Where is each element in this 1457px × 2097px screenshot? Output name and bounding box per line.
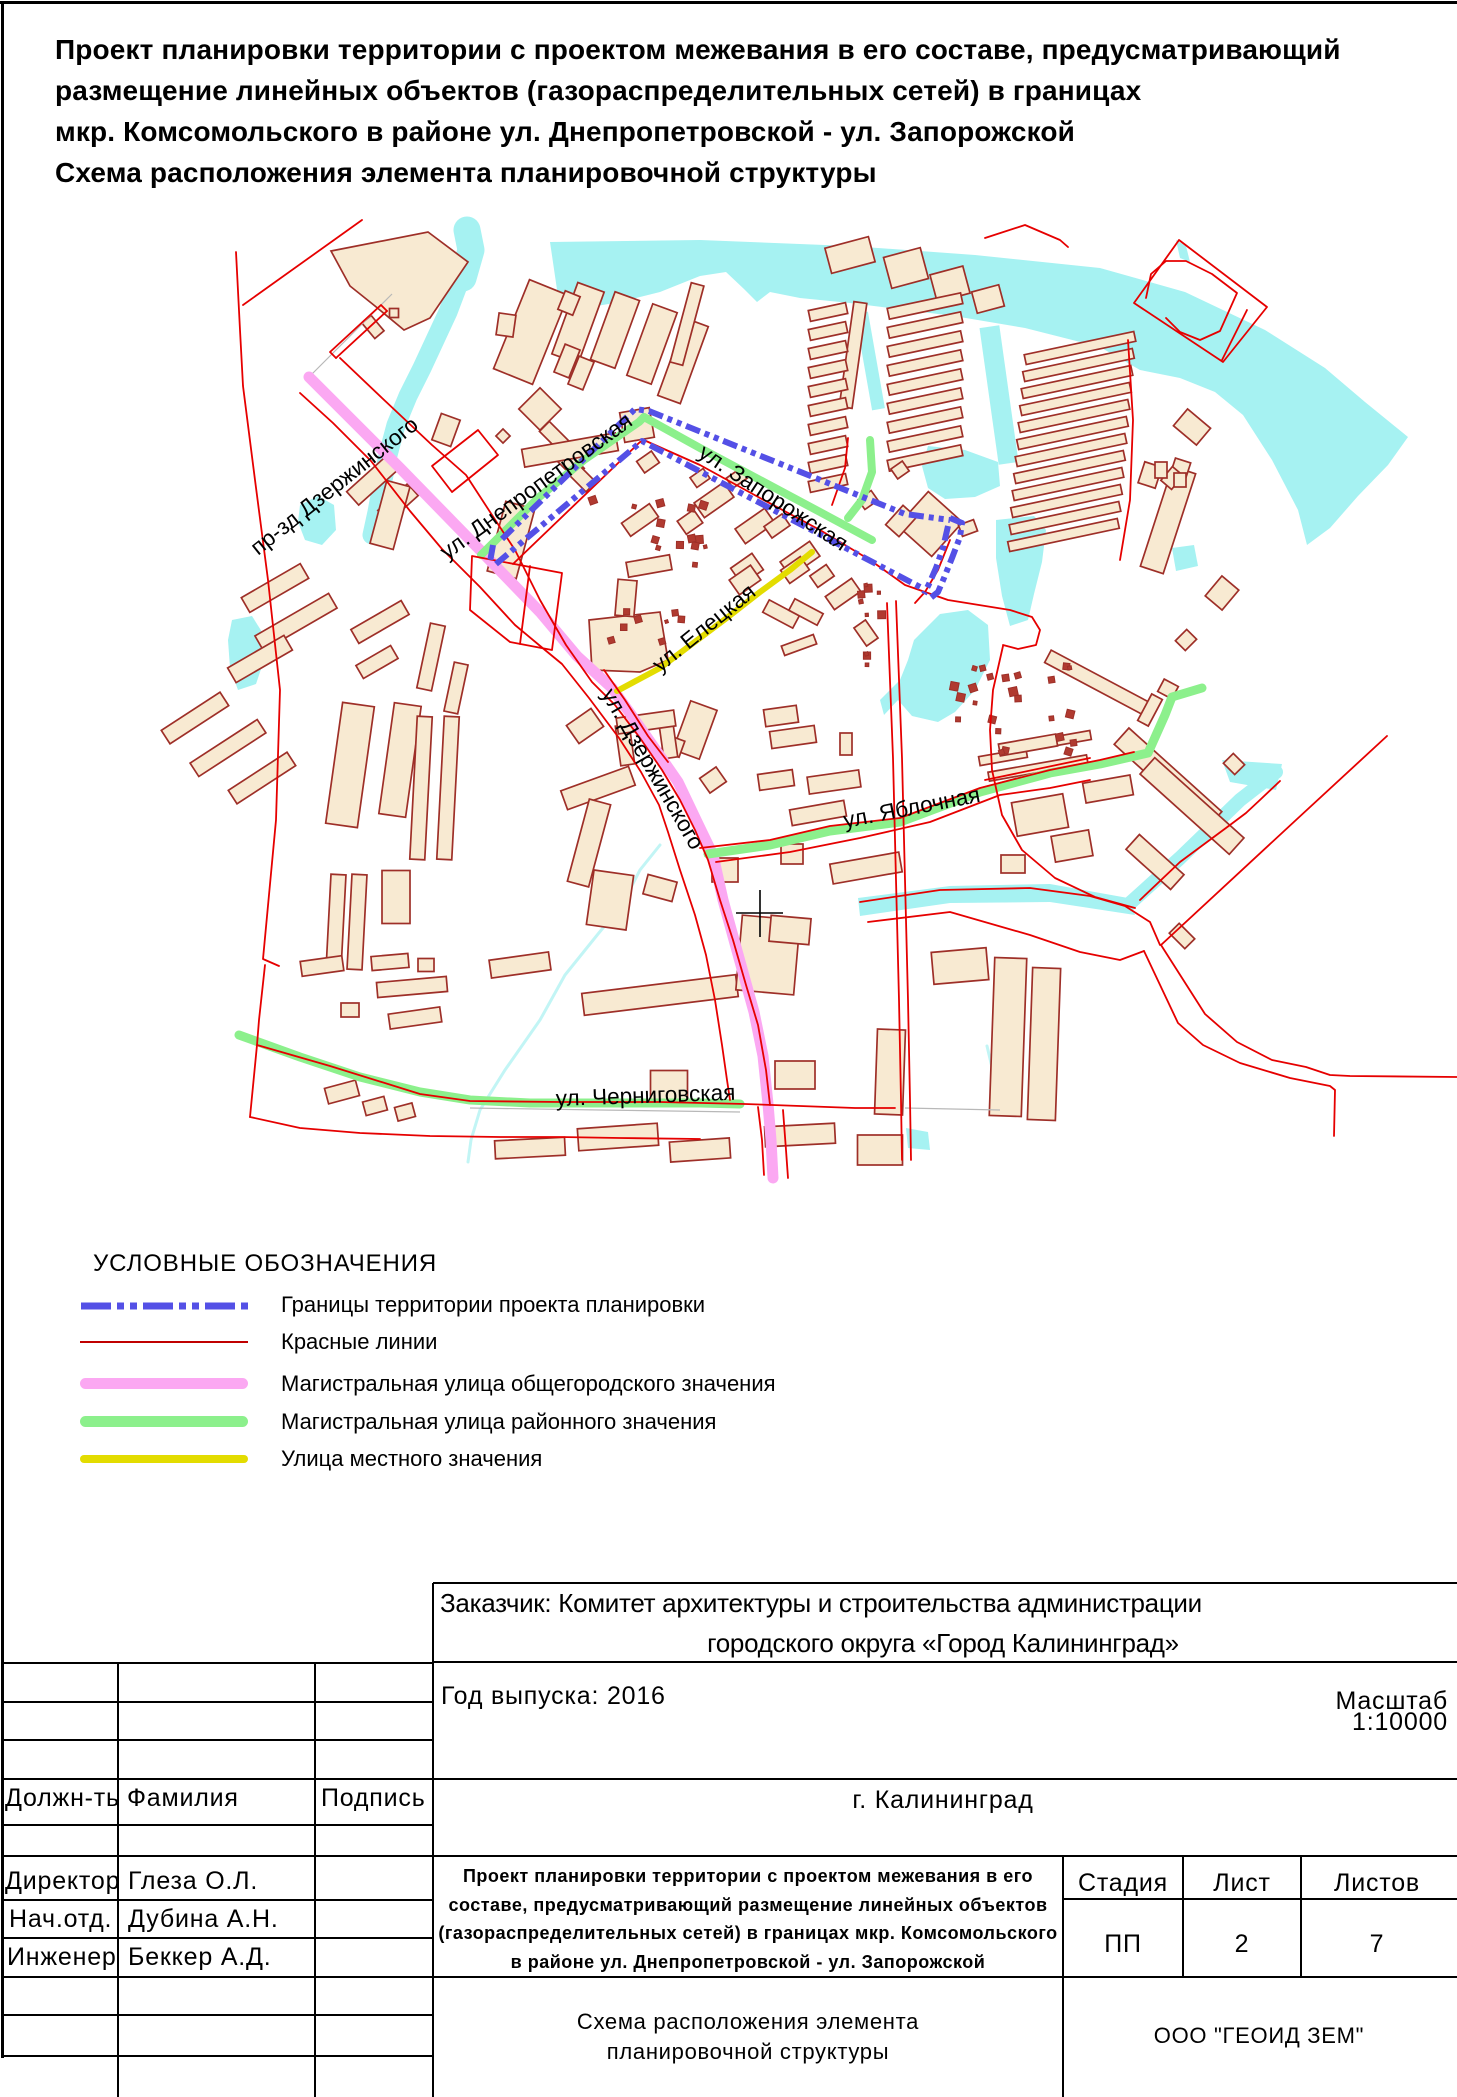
svg-text:ул. Елецкая: ул. Елецкая: [647, 579, 760, 677]
svg-text:ул. Яблочная: ул. Яблочная: [841, 782, 982, 833]
